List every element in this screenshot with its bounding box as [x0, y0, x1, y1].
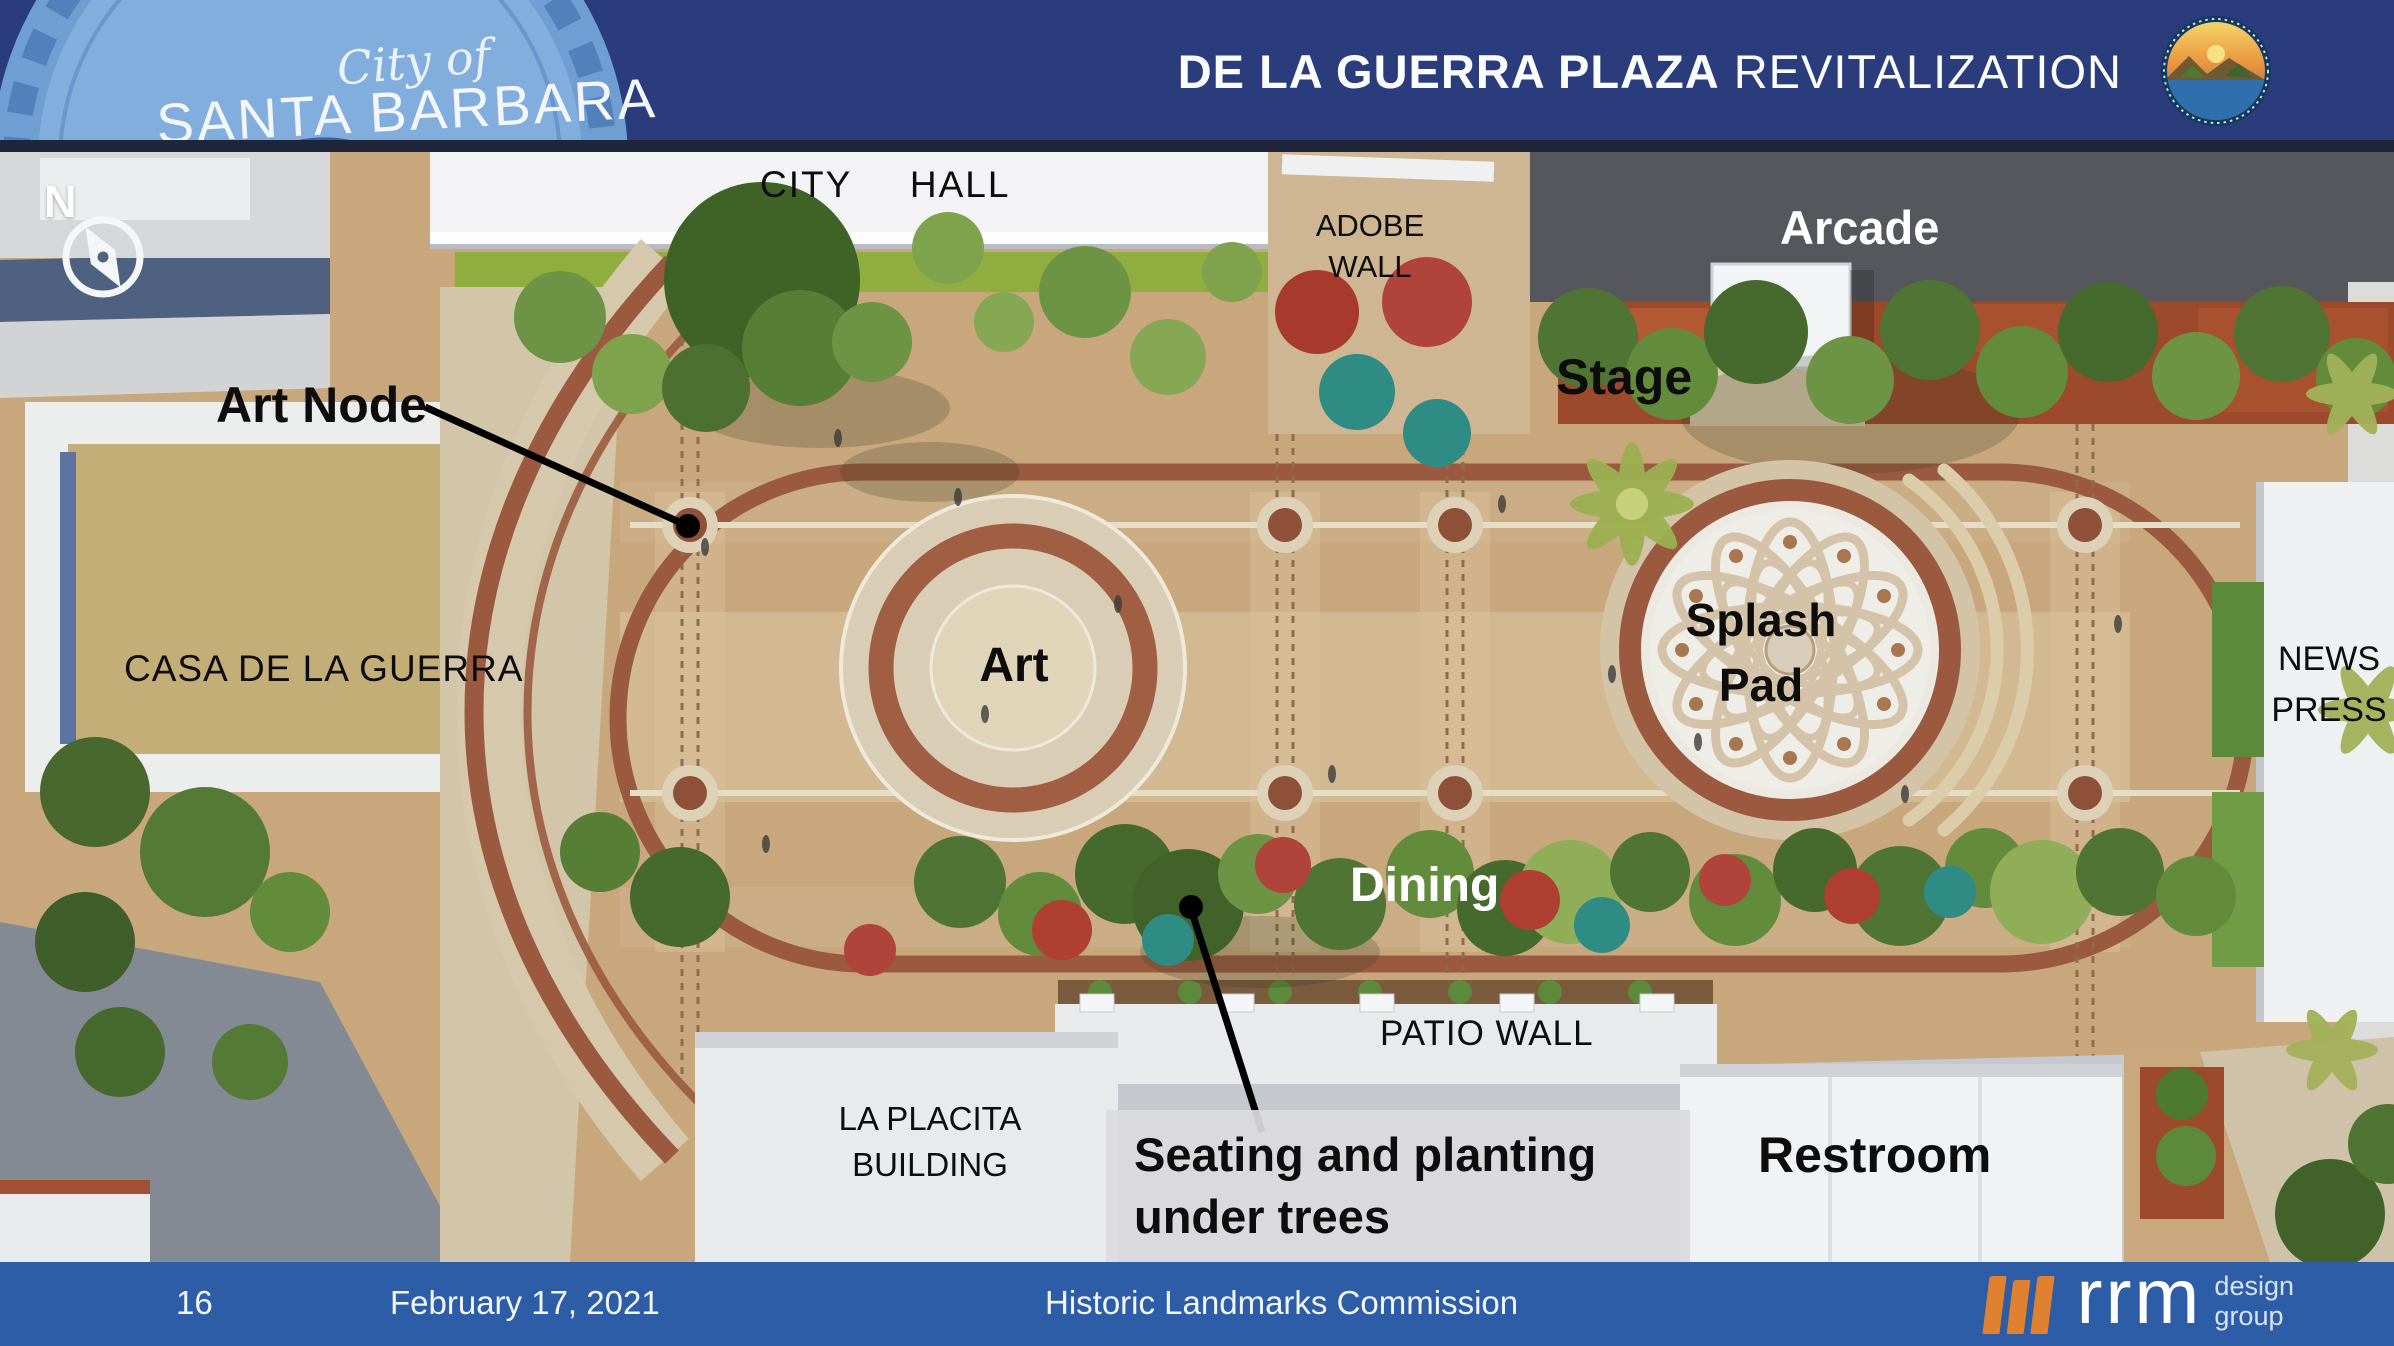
header-divider	[0, 140, 2394, 152]
label-seating-planting: Seating and planting under trees	[1106, 1110, 1690, 1268]
title-regular: REVITALIZATION	[1734, 45, 2122, 98]
presentation-slide: City of SANTA BARBARA DE LA GUERRA PLAZA…	[0, 0, 2394, 1346]
courtyard	[68, 444, 440, 754]
label-patio-wall: PATIO WALL	[1380, 1014, 1594, 1054]
label-arcade: Arcade	[1780, 200, 1939, 255]
logo-bar	[2007, 1280, 2031, 1334]
label-adobe-wall: ADOBE WALL	[1250, 206, 1490, 288]
label-art-node: Art Node	[216, 376, 427, 434]
compass-north-label: N	[44, 176, 77, 228]
page-title: DE LA GUERRA PLAZAREVITALIZATION	[1178, 44, 2122, 99]
casa-building	[25, 402, 470, 792]
plaza-map-graphic	[0, 152, 2394, 1262]
footer-date: February 17, 2021	[390, 1284, 660, 1322]
label-splash-pad: Splash Pad	[1648, 588, 1874, 719]
footer-bar: 16 February 17, 2021 Historic Landmarks …	[0, 1262, 2394, 1346]
rrm-design-group-logo: rrm design group	[1986, 1266, 2294, 1342]
label-stage: Stage	[1556, 348, 1692, 406]
rrm-logo-subtext: design group	[2214, 1271, 2294, 1331]
header-bar: City of SANTA BARBARA DE LA GUERRA PLAZA…	[0, 0, 2394, 140]
plaza-rendering: N CITY HALL ADOBE WALL Arcade Stage Art …	[0, 152, 2394, 1262]
city-seal-color	[2159, 14, 2273, 128]
label-casa-de-la-guerra: CASA DE LA GUERRA	[124, 648, 523, 690]
label-city-hall: CITY HALL	[760, 164, 1010, 206]
footer-commission-title: Historic Landmarks Commission	[1045, 1284, 1518, 1322]
rrm-logo-bars-icon	[1986, 1274, 2058, 1334]
rrm-logo-text: rrm	[2076, 1269, 2202, 1323]
city-of-santa-barbara-seal: City of SANTA BARBARA	[0, 0, 700, 140]
label-restroom: Restroom	[1758, 1126, 1991, 1184]
label-dining: Dining	[1350, 858, 1499, 913]
logo-bar	[1983, 1276, 2007, 1334]
title-bold: DE LA GUERRA PLAZA	[1178, 45, 1720, 98]
label-news-press: NEWS PRESS	[2264, 634, 2394, 736]
logo-bar	[2031, 1276, 2055, 1334]
label-art: Art	[938, 638, 1090, 693]
page-number: 16	[176, 1284, 213, 1322]
label-la-placita-building: LA PLACITA BUILDING	[794, 1096, 1066, 1188]
